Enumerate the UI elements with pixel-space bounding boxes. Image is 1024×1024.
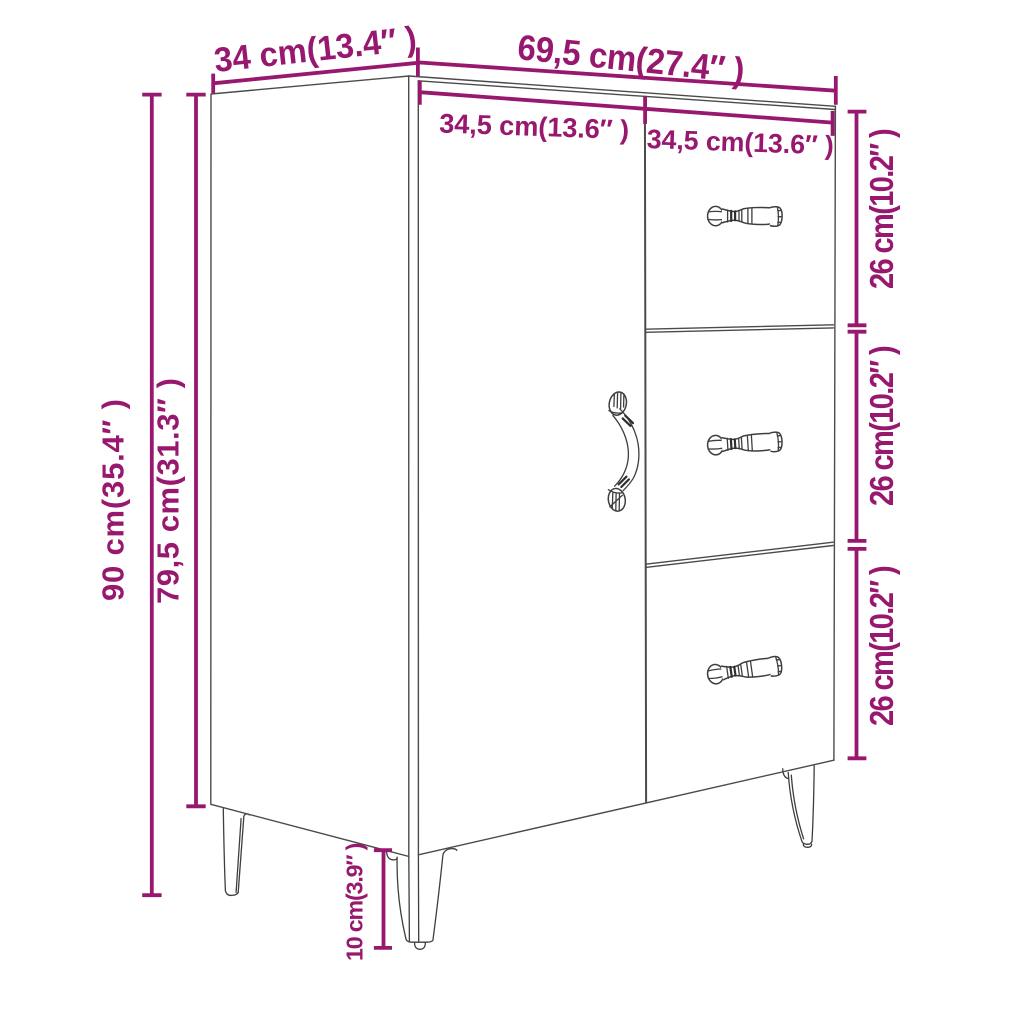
svg-text:79,5 cm(31.3″ ): 79,5 cm(31.3″ ) — [150, 378, 185, 604]
svg-text:26 cm(10.2″ ): 26 cm(10.2″ ) — [863, 347, 900, 506]
svg-text:26 cm(10.2″ ): 26 cm(10.2″ ) — [863, 567, 900, 726]
svg-text:26 cm(10.2″ ): 26 cm(10.2″ ) — [863, 130, 900, 289]
svg-text:90 cm(35.4″ ): 90 cm(35.4″ ) — [95, 398, 130, 601]
svg-text:10 cm(3.9″ ): 10 cm(3.9″ ) — [342, 843, 368, 961]
svg-text:34,5 cm(13.6″ ): 34,5 cm(13.6″ ) — [439, 108, 630, 146]
